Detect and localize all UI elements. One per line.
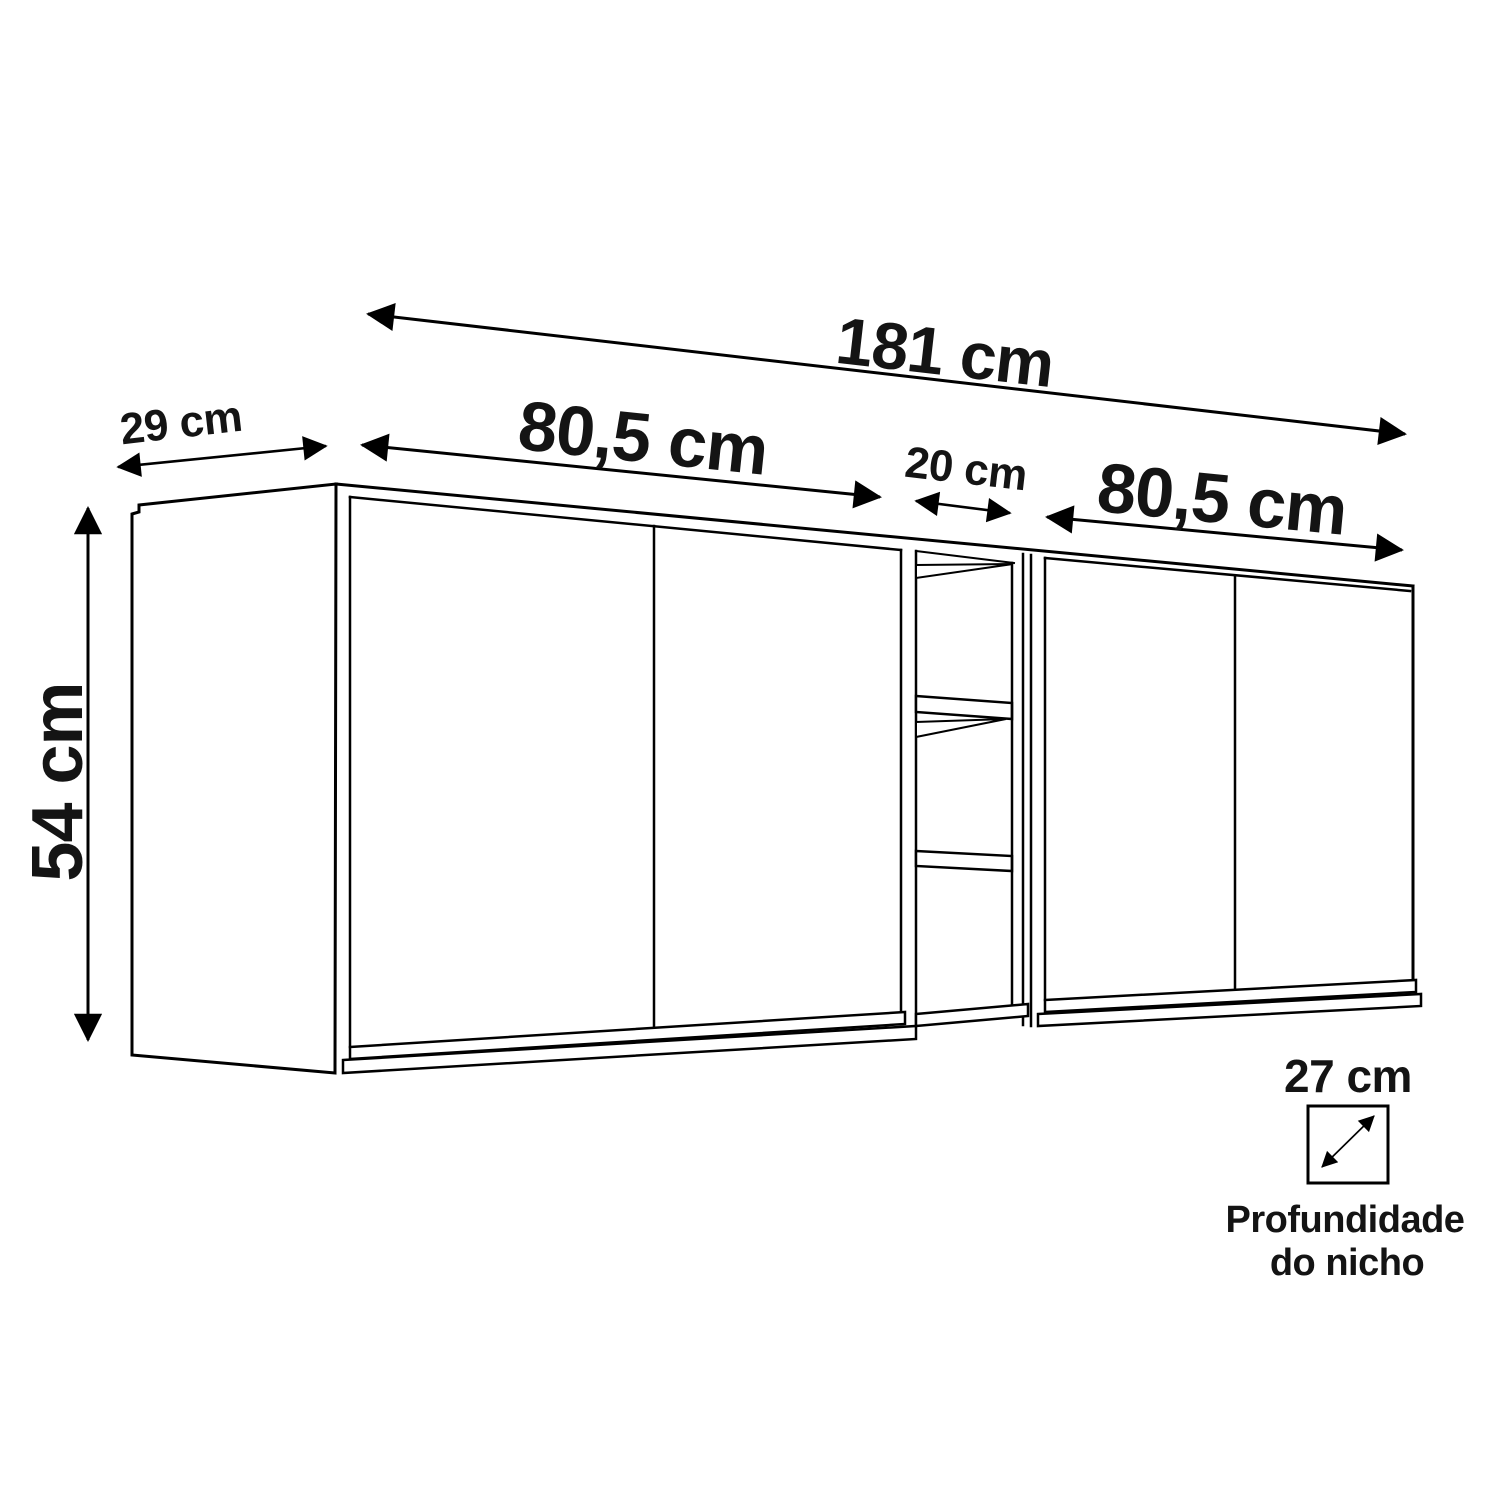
niche-depth-caption-line2: do nicho — [1270, 1242, 1424, 1284]
cabinet-dimension-diagram: 181 cm 80,5 cm 20 cm 80,5 cm 29 cm 54 cm… — [0, 0, 1500, 1500]
height-label: 54 cm — [18, 682, 98, 881]
niche-depth-label: 27 cm — [1284, 1050, 1412, 1102]
niche-shelf-lower — [916, 851, 1012, 871]
niche-depth-caption-line1: Profundidade — [1226, 1199, 1465, 1241]
side-panel — [132, 484, 336, 1073]
niche-depth-box — [1308, 1106, 1388, 1183]
diagram-canvas: 181 cm 80,5 cm 20 cm 80,5 cm 29 cm 54 cm… — [0, 0, 1500, 1500]
